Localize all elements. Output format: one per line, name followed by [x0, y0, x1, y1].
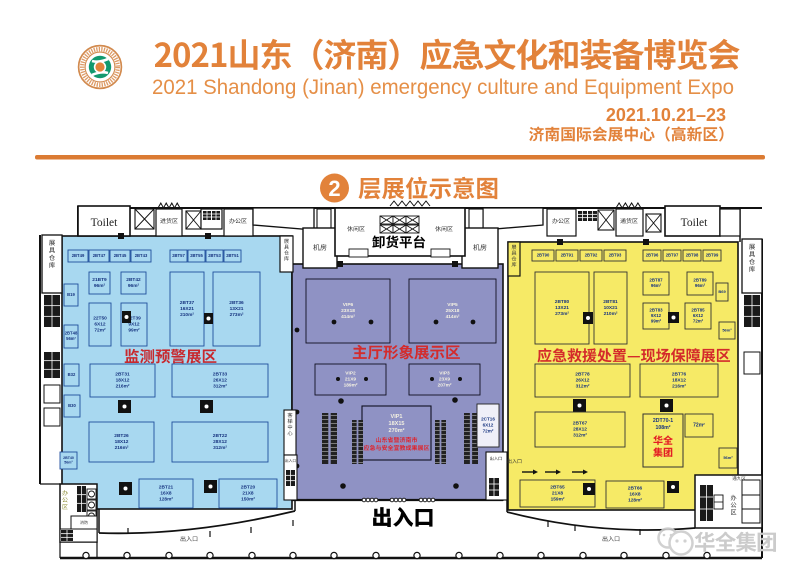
svg-text:16X8: 16X8 — [160, 491, 172, 497]
svg-text:99m²: 99m² — [651, 319, 662, 324]
svg-text:2BT33: 2BT33 — [213, 372, 228, 378]
svg-text:21X9: 21X9 — [345, 377, 357, 383]
svg-text:2BT76: 2BT76 — [672, 372, 687, 378]
svg-text:2BT96: 2BT96 — [646, 252, 659, 257]
svg-text:2BT36: 2BT36 — [229, 300, 244, 306]
svg-text:2BT48: 2BT48 — [65, 331, 78, 336]
svg-text:6X12: 6X12 — [94, 322, 106, 328]
svg-text:159m²: 159m² — [551, 497, 565, 503]
svg-text:21X8: 21X8 — [242, 491, 254, 497]
svg-text:VIP2: VIP2 — [345, 371, 356, 377]
svg-text:312m²: 312m² — [213, 445, 227, 451]
svg-text:2BT81: 2BT81 — [603, 299, 618, 305]
svg-text:2BT98: 2BT98 — [686, 252, 699, 257]
svg-text:72m²: 72m² — [94, 328, 106, 334]
svg-text:VIP1: VIP1 — [391, 414, 403, 420]
svg-text:6X12: 6X12 — [483, 423, 494, 428]
svg-text:2BT53: 2BT53 — [208, 253, 221, 258]
svg-text:2BT21: 2BT21 — [159, 485, 174, 491]
svg-text:2021.10.21–23: 2021.10.21–23 — [606, 105, 726, 125]
svg-text:13X21: 13X21 — [555, 305, 569, 311]
svg-text:2BT49: 2BT49 — [72, 253, 85, 258]
svg-text:B32: B32 — [68, 372, 76, 377]
svg-text:28X12: 28X12 — [213, 439, 227, 445]
svg-text:2BT40: 2BT40 — [63, 456, 74, 460]
svg-text:312m²: 312m² — [576, 384, 590, 390]
svg-text:2BT85: 2BT85 — [691, 307, 705, 312]
svg-text:273m²: 273m² — [230, 312, 244, 318]
svg-text:2BT51: 2BT51 — [226, 253, 239, 258]
svg-text:22T50: 22T50 — [93, 316, 107, 322]
svg-text:2BT57: 2BT57 — [172, 253, 185, 258]
svg-text:2BT91: 2BT91 — [561, 252, 574, 257]
svg-text:128m²: 128m² — [159, 497, 173, 503]
svg-text:6X12: 6X12 — [693, 313, 704, 318]
svg-text:56m²: 56m² — [64, 461, 73, 465]
svg-text:2BT93: 2BT93 — [609, 252, 622, 257]
svg-text:26X12: 26X12 — [576, 378, 590, 384]
svg-text:312m²: 312m² — [213, 384, 227, 390]
svg-text:273m²: 273m² — [555, 311, 569, 317]
svg-text:2BT37: 2BT37 — [180, 300, 195, 306]
svg-text:18X12: 18X12 — [672, 378, 686, 384]
svg-text:189m²: 189m² — [344, 383, 358, 389]
svg-text:B30: B30 — [68, 403, 76, 408]
svg-text:Toilet: Toilet — [91, 217, 118, 229]
svg-text:16X21: 16X21 — [180, 306, 194, 312]
svg-text:VIP5: VIP5 — [447, 302, 458, 308]
svg-text:2BT66: 2BT66 — [628, 486, 643, 492]
svg-text:2BT80: 2BT80 — [555, 299, 570, 305]
svg-text:96m²: 96m² — [128, 283, 140, 289]
svg-text:2BT45: 2BT45 — [114, 253, 127, 258]
svg-text:Toilet: Toilet — [681, 217, 708, 229]
svg-text:72m²: 72m² — [693, 319, 704, 324]
svg-text:2BT90: 2BT90 — [537, 252, 550, 257]
svg-text:96m²: 96m² — [94, 283, 106, 289]
svg-text:128m²: 128m² — [628, 498, 642, 504]
svg-text:21BT9: 21BT9 — [92, 277, 107, 283]
svg-text:2: 2 — [328, 176, 340, 201]
svg-text:9X12: 9X12 — [651, 313, 662, 318]
svg-text:23X18: 23X18 — [341, 308, 355, 314]
svg-text:2BT20: 2BT20 — [241, 485, 256, 491]
svg-text:99m²: 99m² — [128, 328, 140, 334]
svg-text:216m²: 216m² — [115, 445, 129, 451]
svg-text:2BT83: 2BT83 — [649, 307, 663, 312]
svg-text:2BT26: 2BT26 — [114, 433, 129, 439]
svg-text:108m²: 108m² — [656, 425, 671, 431]
svg-text:2BT42: 2BT42 — [126, 277, 141, 283]
svg-text:2021 Shandong (Jinan) emergenc: 2021 Shandong (Jinan) emergency culture … — [152, 76, 734, 99]
svg-text:96m²: 96m² — [651, 283, 662, 288]
svg-text:2BT47: 2BT47 — [93, 253, 106, 258]
svg-text:2BT55: 2BT55 — [190, 253, 203, 258]
svg-text:150m²: 150m² — [241, 497, 255, 503]
svg-text:2DT70-1: 2DT70-1 — [653, 418, 673, 424]
svg-text:2BT67: 2BT67 — [573, 421, 588, 427]
svg-text:312m²: 312m² — [573, 433, 587, 439]
svg-text:210m²: 210m² — [604, 311, 618, 317]
svg-text:210m²: 210m² — [180, 312, 194, 318]
svg-text:2BT65: 2BT65 — [550, 485, 565, 491]
svg-text:23X9: 23X9 — [439, 377, 451, 383]
svg-text:56m²: 56m² — [723, 455, 733, 460]
svg-text:16X8: 16X8 — [629, 492, 641, 498]
svg-text:2BT22: 2BT22 — [213, 433, 228, 439]
svg-text:96m²: 96m² — [695, 283, 706, 288]
svg-text:270m²: 270m² — [389, 427, 405, 434]
svg-text:216m²: 216m² — [116, 384, 130, 390]
svg-text:414m²: 414m² — [446, 314, 460, 320]
svg-text:2BT99: 2BT99 — [706, 252, 719, 257]
svg-text:2BT31: 2BT31 — [115, 372, 130, 378]
svg-text:B19: B19 — [67, 292, 75, 297]
svg-text:2BT78: 2BT78 — [575, 372, 590, 378]
svg-text:72m²: 72m² — [483, 428, 494, 433]
svg-text:10X21: 10X21 — [604, 305, 618, 311]
svg-text:56m²: 56m² — [722, 327, 732, 332]
svg-text:207m²: 207m² — [438, 383, 452, 389]
svg-text:56m²: 56m² — [66, 336, 76, 341]
svg-text:18X12: 18X12 — [116, 378, 130, 384]
svg-text:2CT16: 2CT16 — [481, 417, 495, 422]
svg-text:2BT92: 2BT92 — [585, 252, 598, 257]
svg-text:B69: B69 — [718, 289, 726, 294]
svg-text:18X15: 18X15 — [389, 421, 405, 427]
svg-text:26X12: 26X12 — [213, 378, 227, 384]
svg-text:18X12: 18X12 — [115, 439, 129, 445]
svg-text:25X18: 25X18 — [446, 308, 460, 314]
svg-text:2BT97: 2BT97 — [666, 252, 679, 257]
svg-text:2BT43: 2BT43 — [135, 253, 148, 258]
svg-text:2BT87: 2BT87 — [649, 278, 663, 283]
svg-text:VIP3: VIP3 — [439, 371, 450, 377]
svg-text:28X12: 28X12 — [573, 427, 587, 433]
svg-text:2BT89: 2BT89 — [693, 278, 707, 283]
svg-text:13X21: 13X21 — [230, 306, 244, 312]
svg-text:414m²: 414m² — [341, 314, 355, 320]
svg-text:72m²: 72m² — [693, 423, 705, 429]
svg-text:VIP6: VIP6 — [343, 302, 354, 308]
svg-text:21X8: 21X8 — [552, 491, 564, 497]
svg-text:216m²: 216m² — [672, 384, 686, 390]
